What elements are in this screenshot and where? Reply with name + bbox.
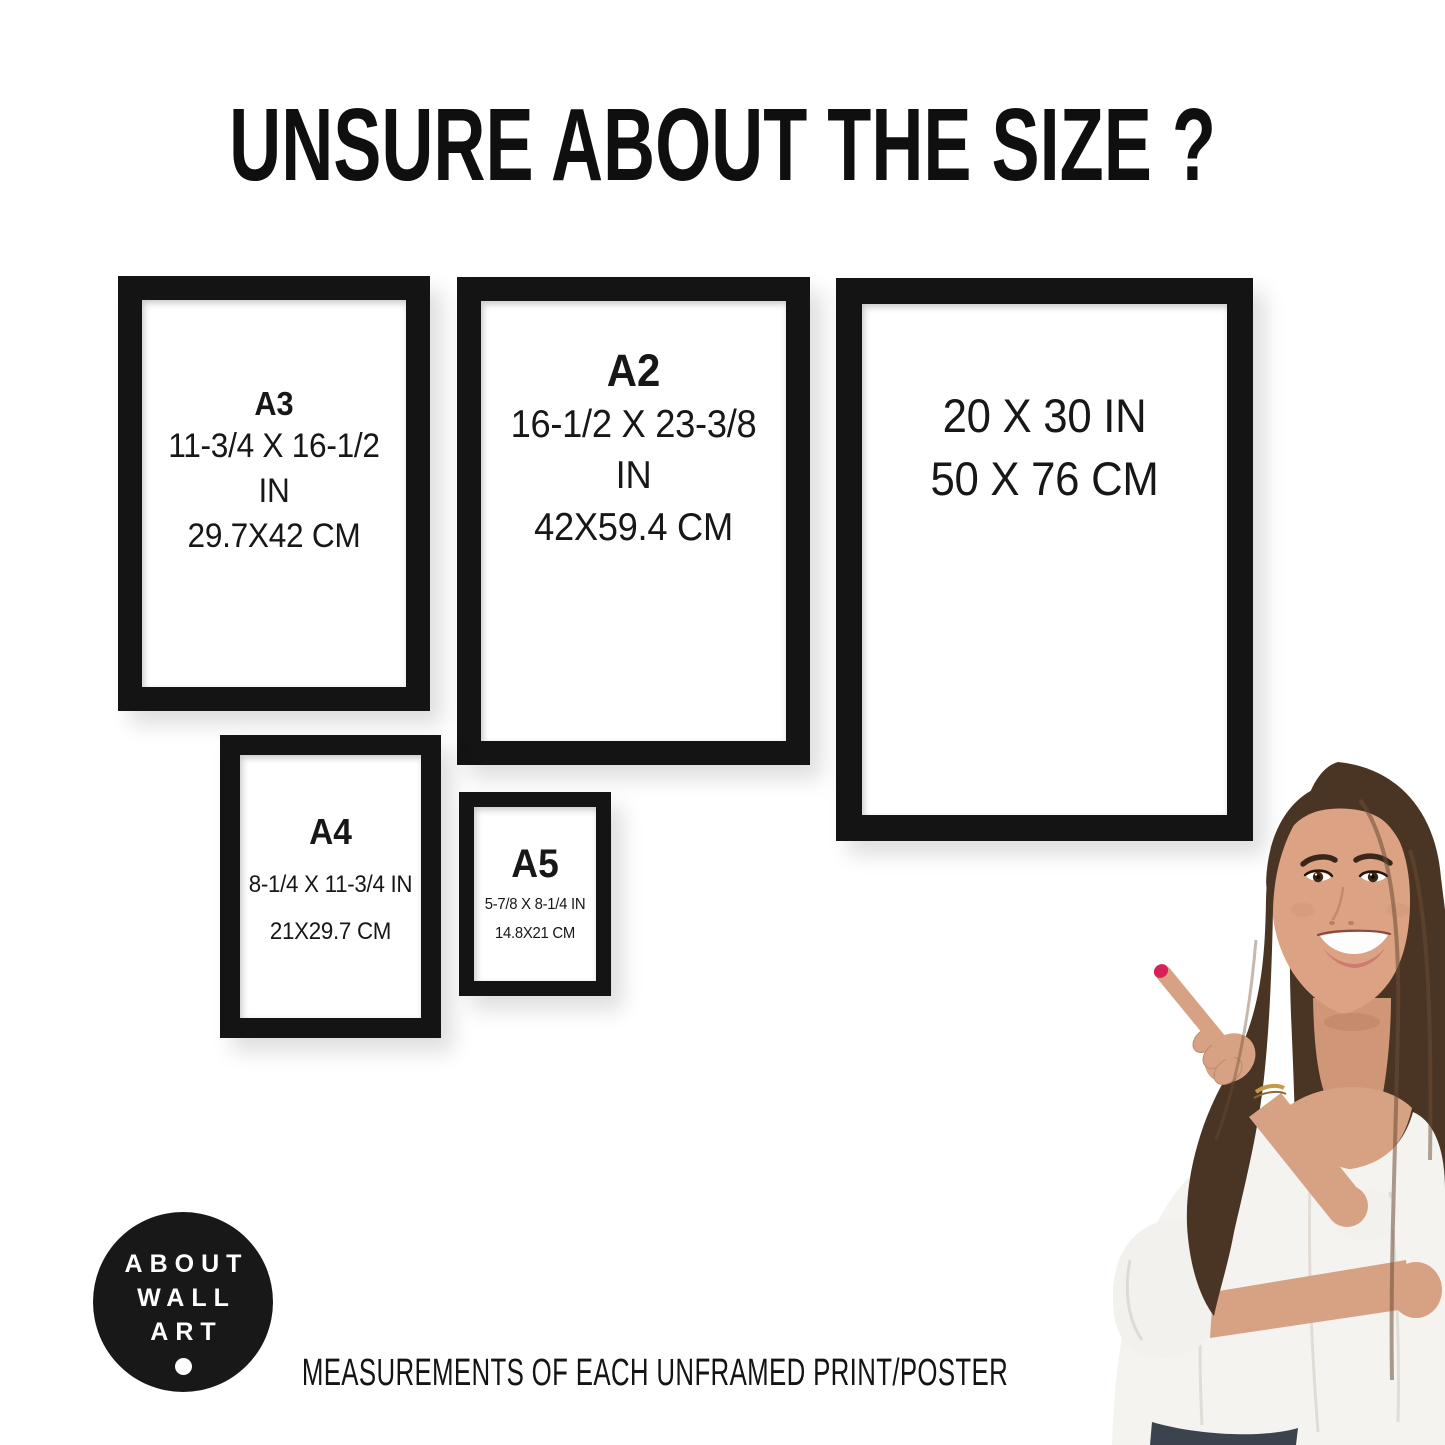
brand-logo-line-1: ABOUT <box>93 1247 273 1281</box>
frame-a2-cm: 42X59.4 CM <box>492 502 776 553</box>
frame-a4: A4 8-1/4 X 11-3/4 IN 21X29.7 CM <box>220 735 441 1038</box>
nostril <box>1348 921 1354 925</box>
woman-pointing-illustration <box>1060 760 1445 1445</box>
frame-20x30-text: 20 X 30 IN 50 X 76 CM <box>875 385 1214 509</box>
eye-highlight <box>1315 873 1317 875</box>
frame-a2-size-label: A2 <box>492 343 776 399</box>
frame-a4-cm: 21X29.7 CM <box>246 909 414 956</box>
frame-a3-size-label: A3 <box>151 383 397 424</box>
frame-a4-inches: 8-1/4 X 11-3/4 IN <box>246 862 414 909</box>
blush <box>1387 903 1409 917</box>
frame-a2: A2 16-1/2 X 23-3/8 IN 42X59.4 CM <box>457 277 810 765</box>
frame-a3-cm: 29.7X42 CM <box>151 514 397 559</box>
elbow <box>1326 1185 1368 1227</box>
frame-a4-text: A4 8-1/4 X 11-3/4 IN 21X29.7 CM <box>246 809 414 956</box>
frame-a5-inches: 5-7/8 X 8-1/4 IN <box>478 891 591 920</box>
brand-logo-line-3: ART <box>93 1315 273 1349</box>
frame-a5-size-label: A5 <box>478 839 591 889</box>
neck-shadow <box>1324 1013 1380 1031</box>
frame-a5: A5 5-7/8 X 8-1/4 IN 14.8X21 CM <box>459 792 611 996</box>
frame-a3-text: A3 11-3/4 X 16-1/2 IN 29.7X42 CM <box>151 383 397 559</box>
frame-a5-text: A5 5-7/8 X 8-1/4 IN 14.8X21 CM <box>478 839 591 949</box>
frame-a4-size-label: A4 <box>246 809 414 854</box>
nostril <box>1329 921 1335 925</box>
size-guide-poster: UNSURE ABOUT THE SIZE ? A3 11-3/4 X 16-1… <box>0 0 1445 1445</box>
eye-highlight <box>1370 873 1372 875</box>
logo-dot <box>175 1358 192 1375</box>
frame-20x30-cm: 50 X 76 CM <box>875 448 1214 510</box>
frame-a5-cm: 14.8X21 CM <box>478 920 591 949</box>
crossed-hand <box>1390 1262 1442 1318</box>
frame-a3: A3 11-3/4 X 16-1/2 IN 29.7X42 CM <box>118 276 430 711</box>
brand-logo-line-2: WALL <box>93 1281 273 1315</box>
frame-a2-inches: 16-1/2 X 23-3/8 IN <box>492 399 776 502</box>
blush <box>1291 903 1315 917</box>
frame-20x30-inches: 20 X 30 IN <box>875 385 1214 447</box>
frame-20x30: 20 X 30 IN 50 X 76 CM <box>836 278 1253 841</box>
frame-a2-text: A2 16-1/2 X 23-3/8 IN 42X59.4 CM <box>492 343 776 554</box>
frame-a3-inches: 11-3/4 X 16-1/2 IN <box>151 424 397 514</box>
page-title: UNSURE ABOUT THE SIZE ? <box>217 86 1229 204</box>
footer-caption: MEASUREMENTS OF EACH UNFRAMED PRINT/POST… <box>210 1352 1101 1395</box>
